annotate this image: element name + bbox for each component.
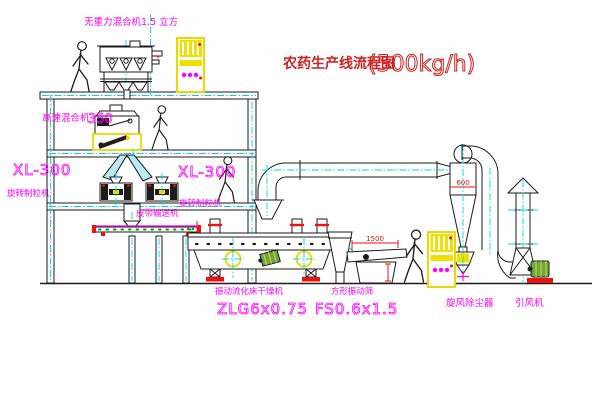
cabinet-knob (439, 268, 443, 272)
screen-model: FS0.6x1.5 (315, 300, 398, 318)
high-speed-mixer-label: 高速混合机 (42, 112, 90, 124)
cyclone-label: 旋风除尘器 (446, 297, 494, 309)
granulator-right-label: 旋转制粒机 (179, 198, 222, 209)
flow-diagram-canvas: 1500 600 (0, 0, 600, 403)
control-cabinet-1 (177, 38, 204, 92)
diagram-title-capacity: (500kg/h) (368, 52, 475, 77)
screen-label: 方形振动筛 (331, 286, 374, 297)
dryer-label: 振动流化床干燥机 (215, 286, 284, 297)
belt-conveyor-label: 皮带输送机 (136, 208, 179, 219)
process-flow-drawing: 1500 600 (0, 0, 600, 403)
granulator-right-model: XL-300 (178, 163, 236, 181)
granulator-left-model: XL-300 (13, 161, 71, 179)
cabinet-knob (433, 268, 437, 272)
cabinet-knob (188, 73, 192, 77)
cabinet-knob (445, 268, 449, 272)
control-cabinet-2 (428, 232, 455, 287)
high-speed-mixer-model: 350 (88, 112, 113, 127)
dryer-model: ZLG6x0.75 (217, 300, 308, 318)
granulator-left-label: 旋转制粒机 (7, 188, 50, 199)
fan-label: 引风机 (515, 297, 544, 309)
gravity-mixer-label: 无重力混合机1.5 立方 (84, 16, 178, 28)
screen-length-dimension-text: 1500 (366, 235, 384, 243)
cabinet-knob (182, 73, 186, 77)
cabinet-knob (194, 73, 198, 77)
